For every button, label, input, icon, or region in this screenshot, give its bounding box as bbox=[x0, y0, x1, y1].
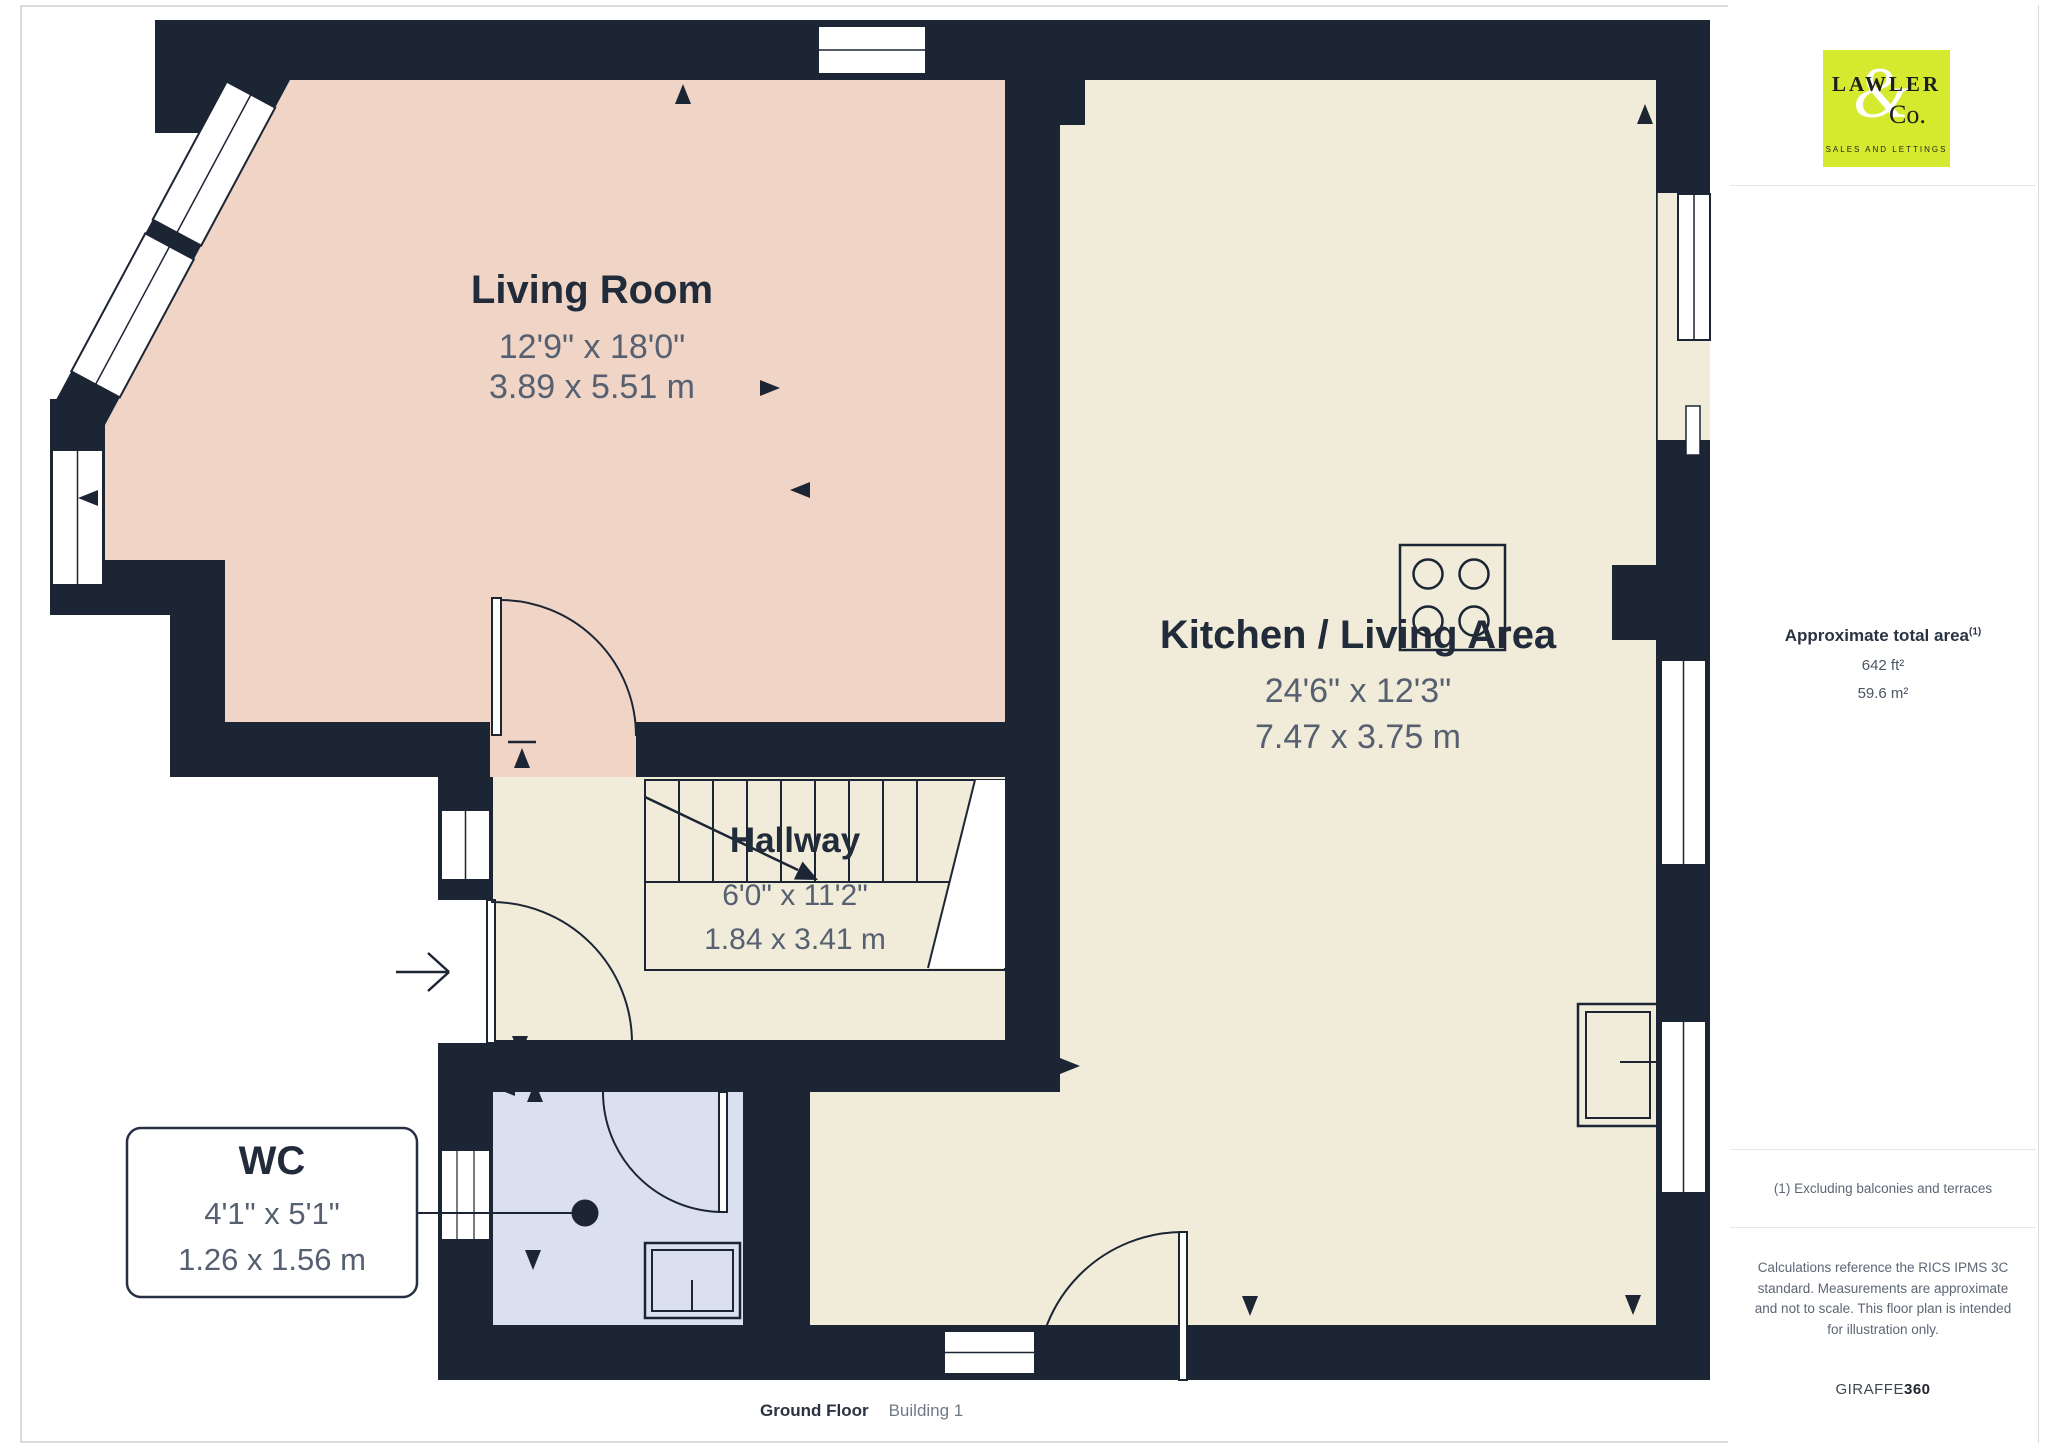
sidebar: & LAWLER Co. SALES AND LETTINGS bbox=[1728, 0, 2038, 1448]
hallway-dims-imperial: 6'0" x 11'2" bbox=[722, 879, 868, 912]
window-right-3 bbox=[1661, 1021, 1706, 1193]
floorplan-page: { "floorplan": { "rooms": { "living_room… bbox=[0, 0, 2048, 1448]
window-right-sliver bbox=[1686, 406, 1700, 455]
window-bay-left bbox=[52, 450, 103, 585]
living-room-title: Living Room bbox=[471, 268, 713, 312]
page-border-left bbox=[20, 5, 22, 1443]
window-right-1 bbox=[1678, 194, 1710, 340]
window-bottom bbox=[944, 1331, 1035, 1374]
sidebar-divider-note-bottom bbox=[1730, 1227, 2036, 1228]
agency-logo: & LAWLER Co. SALES AND LETTINGS bbox=[1823, 50, 1950, 167]
footer: Ground Floor Building 1 bbox=[760, 1401, 963, 1421]
kitchen-title: Kitchen / Living Area bbox=[1160, 613, 1557, 657]
hallway-title: Hallway bbox=[730, 821, 861, 860]
hallway-dims-metric: 1.84 x 3.41 m bbox=[704, 923, 886, 956]
kitchen-dims-imperial: 24'6" x 12'3" bbox=[1265, 672, 1451, 710]
sidebar-divider-logo bbox=[1730, 185, 2036, 186]
footnote: (1) Excluding balconies and terraces bbox=[1742, 1181, 2024, 1196]
living-room-dims-metric: 3.89 x 5.51 m bbox=[489, 368, 695, 406]
disclaimer: Calculations reference the RICS IPMS 3C … bbox=[1752, 1258, 2014, 1340]
kitchen-dims-metric: 7.47 x 3.75 m bbox=[1255, 718, 1461, 756]
brand-regular: GIRAFFE bbox=[1835, 1381, 1904, 1398]
logo-name: LAWLER bbox=[1823, 72, 1950, 97]
area-summary: Approximate total area(1) 642 ft² 59.6 m… bbox=[1728, 626, 2038, 702]
floor-label: Ground Floor bbox=[760, 1401, 869, 1421]
logo-co: Co. bbox=[1889, 100, 1926, 130]
sidebar-divider-note-top bbox=[1730, 1149, 2036, 1150]
area-metric: 59.6 m² bbox=[1728, 685, 2038, 702]
building-label: Building 1 bbox=[889, 1401, 964, 1421]
area-superscript: (1) bbox=[1969, 626, 1981, 637]
area-imperial: 642 ft² bbox=[1728, 657, 2038, 674]
living-room-dims-imperial: 12'9" x 18'0" bbox=[499, 328, 685, 366]
wc-dims-imperial: 4'1" x 5'1" bbox=[204, 1196, 340, 1231]
window-right-2 bbox=[1661, 660, 1706, 865]
logo-tagline: SALES AND LETTINGS bbox=[1823, 145, 1950, 154]
window-top bbox=[818, 26, 926, 74]
brand: GIRAFFE360 bbox=[1728, 1381, 2038, 1398]
living-room-door-gap bbox=[490, 722, 636, 777]
toilet-icon bbox=[572, 1200, 599, 1227]
window-wc bbox=[441, 1150, 490, 1240]
brand-bold: 360 bbox=[1904, 1381, 1931, 1398]
area-title: Approximate total area(1) bbox=[1728, 626, 2038, 646]
wc-floor bbox=[493, 1092, 743, 1325]
wc-title: WC bbox=[239, 1139, 306, 1183]
window-hallway bbox=[441, 810, 490, 880]
wc-dims-metric: 1.26 x 1.56 m bbox=[178, 1242, 366, 1277]
